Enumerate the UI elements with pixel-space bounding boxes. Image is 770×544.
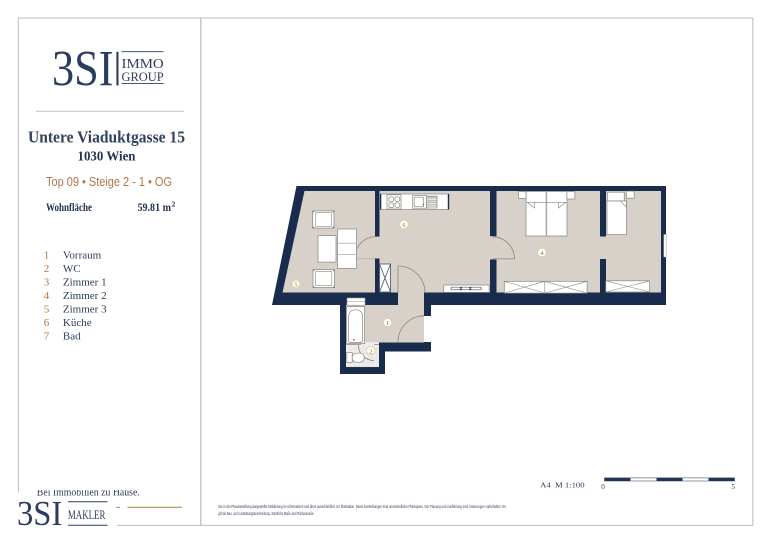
- svg-text:Bad: Bad: [63, 330, 81, 342]
- svg-text:4: 4: [44, 290, 50, 302]
- svg-text:MAKLER: MAKLER: [68, 508, 106, 522]
- svg-text:Untere Viaduktgasse 15: Untere Viaduktgasse 15: [28, 128, 185, 147]
- svg-text:59.81 m: 59.81 m: [138, 202, 172, 214]
- svg-text:1: 1: [44, 250, 50, 262]
- svg-text:5: 5: [44, 304, 50, 316]
- svg-text:5: 5: [294, 282, 297, 289]
- svg-text:6: 6: [44, 317, 50, 329]
- svg-text:Zimmer 1: Zimmer 1: [63, 277, 107, 289]
- svg-text:2: 2: [44, 263, 50, 275]
- svg-text:A4 M 1:100: A4 M 1:100: [540, 481, 585, 489]
- svg-text:Küche: Küche: [63, 317, 92, 329]
- svg-text:7: 7: [44, 330, 50, 342]
- svg-text:5: 5: [731, 483, 735, 491]
- svg-text:GROUP: GROUP: [122, 70, 164, 84]
- svg-text:Top 09 • Steige 2 - 1 • OG: Top 09 • Steige 2 - 1 • OG: [46, 174, 172, 189]
- svg-text:1030 Wien: 1030 Wien: [78, 149, 136, 164]
- svg-text:3: 3: [44, 277, 50, 289]
- svg-text:6: 6: [402, 222, 405, 229]
- svg-text:Wohnfläche: Wohnfläche: [46, 202, 92, 214]
- svg-text:Zimmer 2: Zimmer 2: [63, 290, 107, 302]
- svg-text:WC: WC: [63, 263, 81, 275]
- svg-text:1: 1: [386, 320, 389, 327]
- svg-text:0: 0: [601, 483, 605, 491]
- svg-text:gilt die Bau- und Ausstattungs: gilt die Bau- und Ausstattungsbeschreibu…: [218, 511, 314, 516]
- svg-text:Die in der Plandarstellung dar: Die in der Plandarstellung dargestellte …: [218, 504, 505, 509]
- svg-text:2: 2: [172, 200, 176, 209]
- svg-text:2: 2: [369, 348, 372, 355]
- svg-text:Zimmer 3: Zimmer 3: [63, 304, 107, 316]
- svg-text:3SI: 3SI: [17, 494, 62, 533]
- svg-text:Vorraum: Vorraum: [63, 250, 102, 262]
- svg-text:3SI: 3SI: [52, 42, 114, 98]
